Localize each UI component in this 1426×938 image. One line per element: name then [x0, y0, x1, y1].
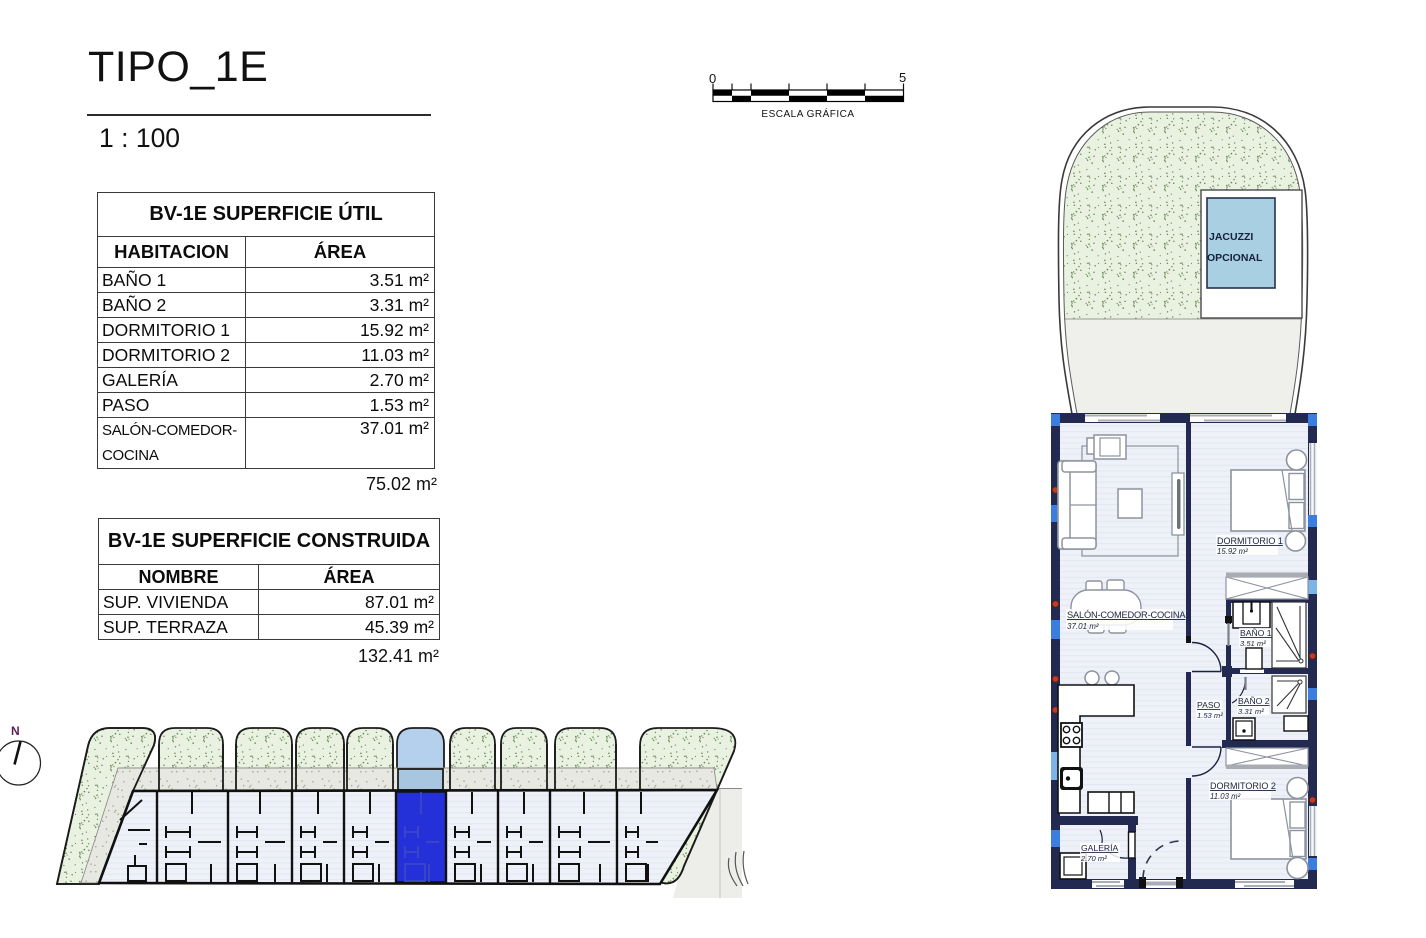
svg-text:JACUZZI: JACUZZI — [1209, 231, 1253, 243]
svg-text:ESCALA GRÁFICA: ESCALA GRÁFICA — [761, 107, 854, 120]
svg-text:1.53 m²: 1.53 m² — [1197, 711, 1223, 720]
svg-text:BAÑO 1: BAÑO 1 — [1240, 628, 1272, 638]
svg-text:PASO: PASO — [1197, 700, 1221, 710]
svg-text:5: 5 — [899, 70, 906, 85]
svg-text:11.03 m²: 11.03 m² — [1210, 792, 1241, 801]
svg-text:37.01 m²: 37.01 m² — [1067, 622, 1099, 631]
svg-text:3.31 m²: 3.31 m² — [1238, 707, 1264, 716]
svg-text:15.92 m²: 15.92 m² — [1217, 547, 1248, 556]
svg-text:DORMITORIO 2: DORMITORIO 2 — [1210, 781, 1276, 791]
svg-text:BAÑO 2: BAÑO 2 — [1238, 696, 1270, 706]
svg-text:0: 0 — [709, 71, 716, 86]
svg-text:DORMITORIO 1: DORMITORIO 1 — [1217, 536, 1283, 546]
svg-text:OPCIONAL: OPCIONAL — [1207, 252, 1263, 264]
svg-text:SALÓN-COMEDOR-COCINA: SALÓN-COMEDOR-COCINA — [1067, 610, 1186, 620]
svg-text:GALERÍA: GALERÍA — [1081, 843, 1119, 853]
svg-text:3.51 m²: 3.51 m² — [1240, 639, 1266, 648]
svg-text:2.70 m²: 2.70 m² — [1080, 854, 1107, 863]
svg-text:N: N — [11, 724, 20, 738]
